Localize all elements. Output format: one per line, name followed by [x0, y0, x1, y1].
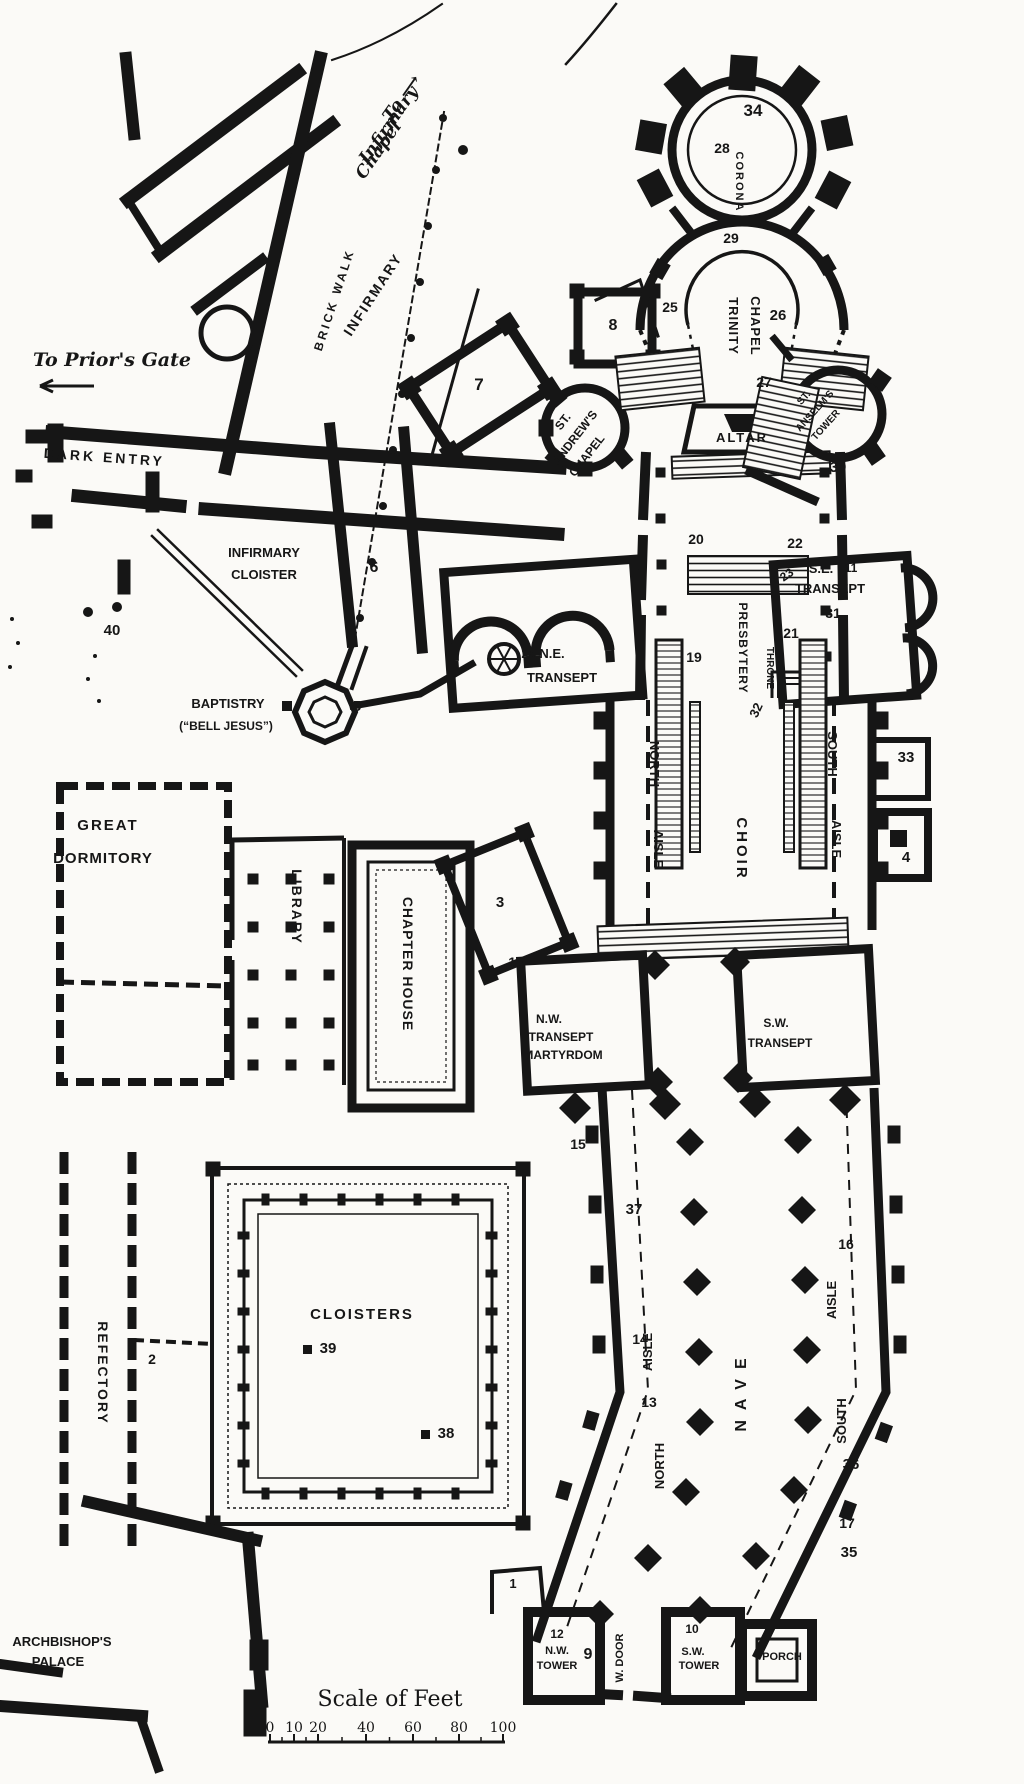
label-aisle-schoir: AISLE — [829, 820, 844, 859]
label-great-dormitory-1: GREAT — [77, 817, 138, 834]
marker-dot — [379, 502, 387, 510]
priors-gate-arrow — [40, 380, 94, 392]
label-scale-tick-20: 20 — [309, 1720, 327, 1736]
label-palace-1: ARCHBISHOP'S — [12, 1634, 111, 1649]
label-refectory: REFECTORY — [95, 1321, 111, 1425]
label-library: LIBRARY — [289, 869, 305, 945]
label-aisle-nchoir: AISLE — [651, 830, 666, 869]
label-great-dormitory-2: DORMITORY — [53, 850, 153, 867]
label-infirmary-cloister-2: CLOISTER — [231, 567, 297, 582]
label-n-1: 1 — [509, 1576, 516, 1591]
marker-dot — [10, 617, 14, 621]
label-n-38: 38 — [438, 1425, 455, 1442]
marker-dot — [86, 677, 90, 681]
map-labels: 3428CORONA2925TRINITYCHAPEL2687ST.ANDREW… — [12, 71, 914, 1682]
marker-dot — [416, 278, 424, 286]
label-n-8b: 8. — [736, 1650, 746, 1664]
refectory-walls — [64, 1152, 212, 1548]
baptistry-walls — [295, 644, 519, 742]
label-scale-tick-100: 100 — [490, 1720, 517, 1736]
label-n-27: 27 — [756, 374, 772, 390]
monastery-ruins-walls — [126, 4, 616, 644]
label-baptistry-1: BAPTISTRY — [191, 696, 265, 711]
label-n-22: 22 — [787, 535, 803, 551]
label-n-8: 8 — [609, 317, 618, 334]
canterbury-cathedral-plan-page: 3428CORONA2925TRINITYCHAPEL2687ST.ANDREW… — [0, 0, 1024, 1784]
label-n-28: 28 — [714, 140, 730, 156]
label-sw-tower-2: TOWER — [679, 1660, 720, 1672]
label-infirmary-cloister-1: INFIRMARY — [228, 545, 300, 560]
marker-dot — [97, 699, 101, 703]
label-dark-entry: DARK ENTRY — [43, 445, 165, 469]
label-n-10: 10 — [685, 1622, 699, 1636]
label-n-21: 21 — [783, 625, 799, 641]
marker-dot — [407, 334, 415, 342]
label-n-17: 17 — [839, 1515, 855, 1531]
label-n-3: 3 — [496, 894, 504, 911]
label-n-33: 33 — [898, 749, 915, 766]
label-nw-transept-3: MARTYRDOM — [523, 1048, 602, 1062]
label-scale-title: Scale of Feet — [318, 1687, 463, 1712]
label-n-7: 7 — [474, 375, 483, 394]
label-baptistry-2: (“BELL JESUS”) — [179, 719, 273, 733]
marker-dot — [83, 607, 93, 617]
label-n-15: 15 — [570, 1136, 586, 1152]
marker-square — [282, 701, 292, 711]
label-ne-transept-2: TRANSEPT — [527, 670, 597, 685]
label-south-choir: SOUTH — [825, 731, 840, 777]
label-n-29: 29 — [723, 230, 739, 246]
label-se-transept-1: S.E. — [809, 561, 834, 576]
label-n-20: 20 — [688, 531, 704, 547]
library-walls — [232, 838, 344, 1085]
label-porch: PORCH — [762, 1651, 802, 1663]
label-n-35: 35 — [841, 1544, 858, 1561]
label-north-choir: NORTH — [647, 741, 662, 787]
marker-dot — [93, 654, 97, 658]
label-nave: NAVE — [733, 1348, 750, 1431]
label-n-37: 37 — [626, 1201, 643, 1218]
cloister-walls — [206, 1162, 530, 1530]
marker-dot — [398, 390, 406, 398]
label-aisle-snave: AISLE — [824, 1281, 839, 1320]
label-presbytery: PRESBYTERY — [736, 603, 750, 694]
label-throne: THRONE — [764, 647, 775, 690]
label-n-11: 11 — [845, 561, 858, 575]
label-n-26: 26 — [770, 307, 787, 324]
label-choir: CHOIR — [733, 817, 750, 880]
label-south-nave: SOUTH — [834, 1398, 849, 1444]
label-nw-tower-2: TOWER — [537, 1660, 578, 1672]
cathedral-floor-plan: 3428CORONA2925TRINITYCHAPEL2687ST.ANDREW… — [0, 0, 1024, 1784]
label-n-4: 4 — [902, 849, 911, 866]
marker-dot — [8, 665, 12, 669]
label-nw-tower-1: N.W. — [545, 1645, 569, 1657]
label-n-31: 31 — [825, 605, 841, 621]
marker-dot — [458, 145, 468, 155]
label-altar: ALTAR — [716, 430, 768, 445]
label-palace-2: PALACE — [32, 1654, 85, 1669]
label-n-9: 9 — [584, 1646, 593, 1663]
label-scale-tick-40: 40 — [357, 1720, 375, 1736]
label-n-16: 16 — [838, 1236, 854, 1252]
label-n-32: 32 — [746, 700, 766, 719]
location-markers — [8, 114, 468, 1439]
label-scale-tick-60: 60 — [404, 1720, 422, 1736]
label-n-12: 12 — [550, 1627, 564, 1641]
marker-dot — [424, 222, 432, 230]
label-n-34: 34 — [744, 101, 763, 120]
label-n-18: 18 — [508, 954, 524, 970]
label-chapel-trinity: CHAPEL — [748, 296, 763, 355]
marker-square — [421, 1430, 430, 1439]
marker-dot — [389, 446, 397, 454]
label-sw-tower-1: S.W. — [681, 1646, 704, 1658]
label-ne-transept-1: 24 N.E. — [521, 646, 564, 661]
label-sw-transept-1: S.W. — [763, 1016, 788, 1030]
label-scale-tick-80: 80 — [450, 1720, 468, 1736]
marker-dot — [112, 602, 122, 612]
label-chapter-house: CHAPTER HOUSE — [400, 897, 416, 1031]
label-sw-transept-2: TRANSEPT — [748, 1036, 813, 1050]
ne-transept-walls — [444, 559, 643, 708]
label-nw-transept-1: N.W. — [536, 1012, 562, 1026]
scale-bar: Scale of Feet01020406080100 — [266, 1687, 517, 1742]
label-n-25: 25 — [662, 299, 678, 315]
label-scale-tick-10: 10 — [285, 1720, 303, 1736]
label-n-36: 36 — [843, 1456, 860, 1473]
label-n-39: 39 — [320, 1340, 337, 1357]
label-corona: CORONA — [733, 152, 745, 213]
label-n-13: 13 — [641, 1394, 657, 1410]
marker-dot — [439, 114, 447, 122]
label-n-40: 40 — [104, 622, 121, 639]
label-nw-transept-2: TRANSEPT — [529, 1030, 594, 1044]
label-n-6: 6 — [370, 559, 379, 576]
marker-dot — [432, 166, 440, 174]
marker-square — [303, 1345, 312, 1354]
marker-dot — [356, 614, 364, 622]
label-cloisters: CLOISTERS — [310, 1306, 414, 1323]
marker-dot — [16, 641, 20, 645]
label-scale-tick-0: 0 — [266, 1720, 275, 1736]
nave-walls — [536, 1084, 906, 1658]
label-n-2: 2 — [148, 1351, 156, 1367]
label-st-andrews-1: ST. — [552, 410, 574, 432]
label-w-door: W. DOOR — [614, 1634, 626, 1683]
label-aisle-nnave: AISLE — [640, 1333, 655, 1372]
label-to-priors-gate: To Prior's Gate — [33, 349, 191, 371]
label-n-30: 30 — [830, 459, 847, 476]
label-n-5: 5 — [353, 698, 361, 715]
label-se-transept-2: TRANSEPT — [795, 581, 865, 596]
label-trinity: TRINITY — [726, 297, 741, 355]
label-n-19: 19 — [686, 649, 702, 665]
label-north-nave: NORTH — [652, 1443, 667, 1489]
